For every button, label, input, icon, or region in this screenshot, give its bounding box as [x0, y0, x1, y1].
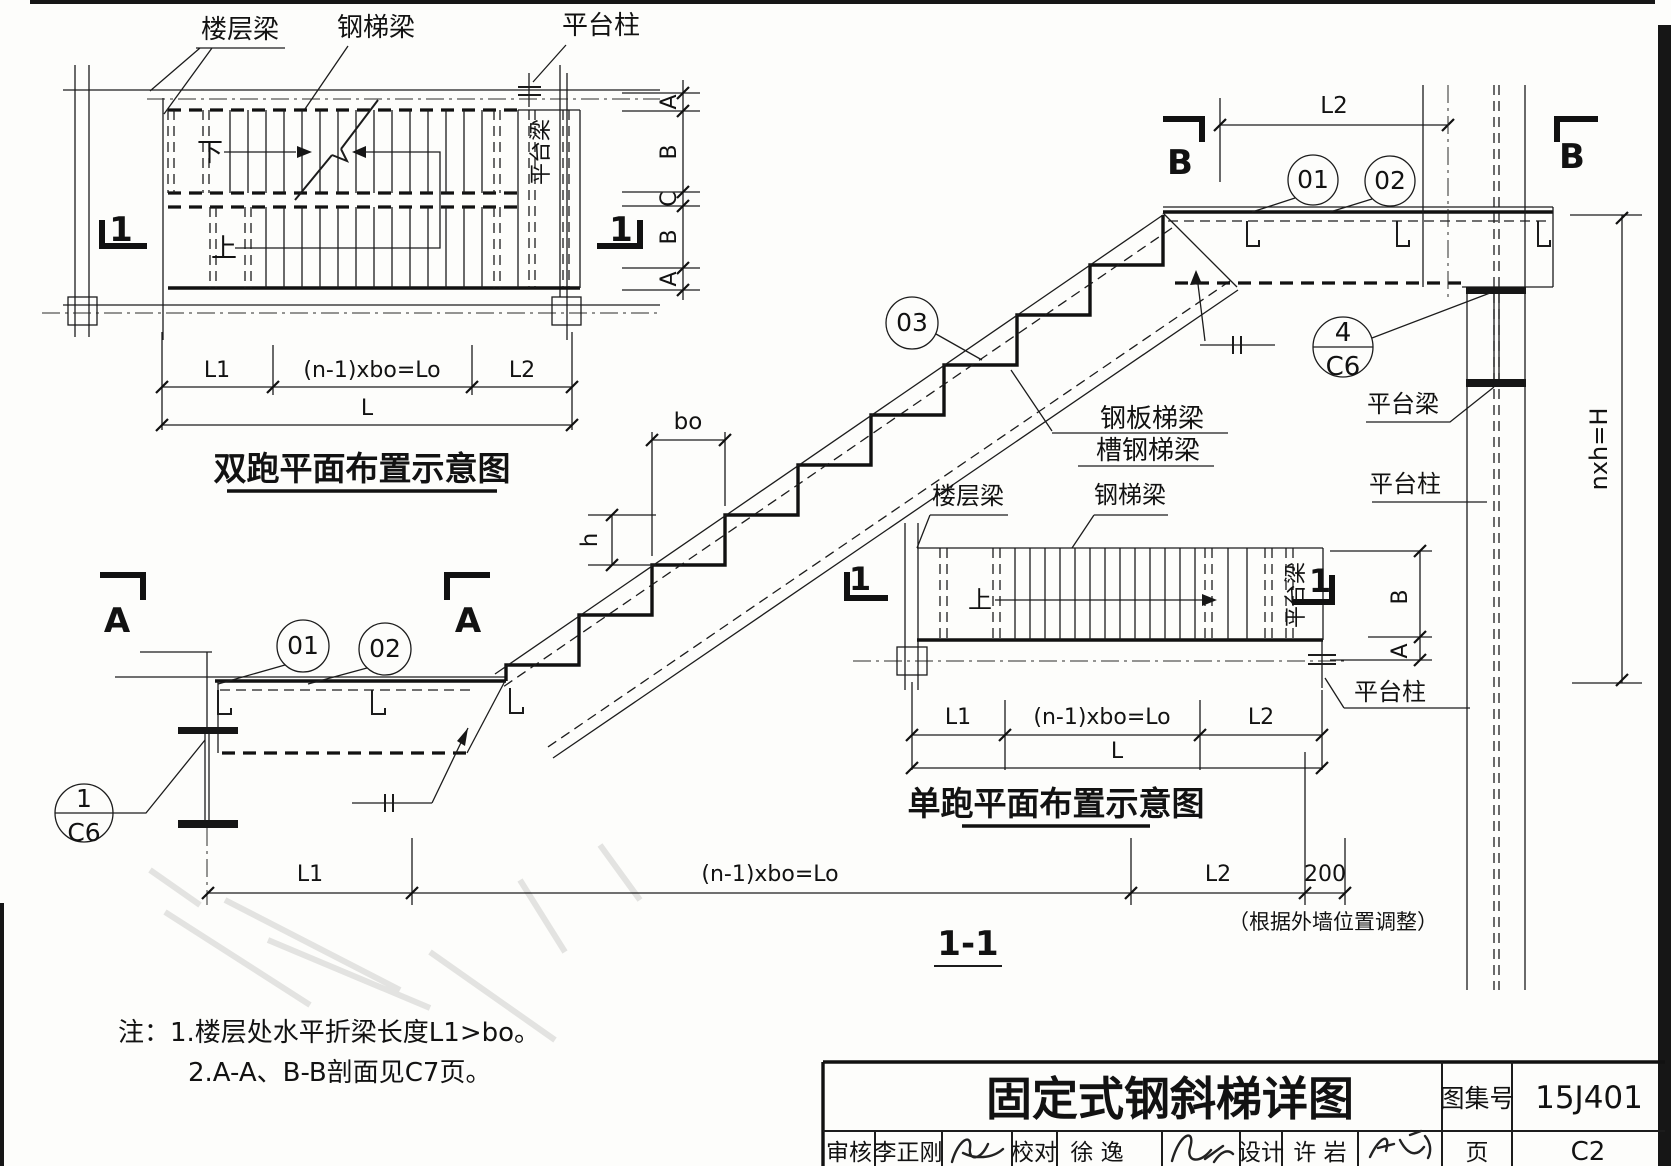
lower-platform: A A 01 02 1 C6	[55, 575, 523, 905]
note-line-1: 1.楼层处水平折梁长度L1>bo。	[170, 1018, 540, 1048]
designer-label: 设计	[1238, 1140, 1284, 1166]
up-label: 上	[968, 586, 992, 614]
dim-A: A	[657, 94, 682, 109]
detail-page: C6	[67, 818, 100, 847]
platform-column-label: 平台柱	[1354, 678, 1426, 706]
section-title: 1-1	[937, 924, 998, 964]
detail-number: 1	[76, 784, 92, 813]
section-mark-1: 1	[609, 210, 633, 250]
right-edge	[1658, 25, 1671, 1166]
atlas-number: 15J401	[1535, 1080, 1643, 1116]
dim-B: B	[657, 144, 682, 159]
checker-signature	[1172, 1136, 1233, 1162]
wall-adjust-note: （根据外墙位置调整）	[1228, 910, 1438, 934]
dim-A: A	[657, 271, 682, 286]
section-mark-bracket	[447, 575, 490, 600]
up-arrow-icon	[352, 146, 366, 158]
page-number: C2	[1571, 1137, 1606, 1166]
reviewer-name: 李正刚	[874, 1140, 943, 1166]
down-label: 下	[197, 138, 223, 168]
column-square	[68, 297, 97, 325]
plate-stair-beam-label: 钢板梯梁	[1100, 404, 1204, 434]
floor-beam-label: 楼层梁	[201, 15, 279, 45]
dim-200: 200	[1304, 862, 1346, 887]
dim-Lo: (n-1)xbo=Lo	[303, 358, 440, 383]
steel-stair-beam-label: 钢梯梁	[1094, 481, 1166, 509]
scan-artifacts	[150, 845, 640, 1040]
dim-Lo: (n-1)xbo=Lo	[701, 862, 838, 887]
beam-top-flange	[1466, 287, 1526, 294]
section-mark-bracket	[100, 575, 143, 600]
checker-name: 徐 逸	[1070, 1140, 1123, 1166]
plan-single-run: 楼层梁 钢梯梁 上 平台梁 1 1 B A 平台柱 L1 (n-1)xbo=Lo…	[847, 481, 1470, 826]
designer-name: 许 岩	[1293, 1140, 1346, 1166]
section-mark-B: B	[1559, 137, 1585, 177]
page-label: 页	[1466, 1140, 1489, 1166]
plan-single-title: 单跑平面布置示意图	[908, 784, 1205, 823]
dim-H: nxh=H	[1585, 408, 1613, 491]
platform-column-label: 平台柱	[1369, 470, 1441, 498]
notes: 注： 1.楼层处水平折梁长度L1>bo。 2.A-A、B-B剖面见C7页。	[118, 1018, 540, 1088]
platform-beam-label: 平台梁	[529, 119, 554, 185]
dim-B: B	[657, 229, 682, 244]
tread-lines	[1015, 548, 1247, 640]
channel-section-icon	[218, 688, 523, 714]
dim-L2: L2	[509, 358, 535, 383]
channel-section-icon	[1247, 221, 1550, 246]
reviewer-signature	[952, 1140, 1003, 1162]
title-block: 固定式钢斜梯详图 图集号 15J401 审核 李正刚 校对 徐 逸 设计 许 岩…	[823, 1062, 1665, 1166]
dim-L1: L1	[297, 862, 323, 887]
dim-C: C	[657, 191, 682, 206]
callout-01: 01	[287, 631, 319, 660]
dim-L: L	[361, 396, 374, 421]
dim-L1: L1	[204, 358, 230, 383]
dim-A: A	[1388, 643, 1413, 658]
section-bottom-dims: L1 (n-1)xbo=Lo L2 200 （根据外墙位置调整） 1-1	[202, 752, 1438, 966]
steel-stair-beam-label: 钢梯梁	[337, 13, 415, 43]
section-mark-1: 1	[1309, 562, 1331, 600]
up-label: 上	[211, 234, 237, 264]
platform-beam-label: 平台梁	[1284, 562, 1309, 628]
checker-label: 校对	[1011, 1140, 1057, 1166]
leader-arrow-icon	[457, 728, 468, 746]
reviewer-label: 审核	[826, 1140, 872, 1166]
top-edge	[30, 0, 1655, 4]
dim-L: L	[1111, 739, 1124, 764]
atlas-label: 图集号	[1439, 1084, 1514, 1113]
detail-number: 4	[1335, 318, 1352, 348]
dim-L2: L2	[1320, 93, 1347, 119]
plan-double-title: 双跑平面布置示意图	[214, 449, 511, 488]
plan-double-run: 楼层梁 钢梯梁 平台柱 下 上 平台梁 1 1 A B C B A L1 (n-…	[42, 11, 700, 491]
section-mark-1: 1	[849, 560, 871, 598]
left-edge	[0, 903, 4, 1166]
ibeam-top-flange	[178, 727, 238, 734]
callout-01: 01	[1297, 165, 1329, 194]
up-arrow-icon	[1202, 594, 1217, 606]
dim-L1: L1	[945, 705, 971, 730]
note-line-2: 2.A-A、B-B剖面见C7页。	[188, 1058, 491, 1088]
upper-platform: B B L2 01 02	[1163, 93, 1598, 354]
ibeam-bottom-flange	[178, 820, 238, 828]
floor-beam-label: 楼层梁	[932, 482, 1004, 510]
dim-bo: bo	[674, 409, 703, 435]
platform-beam-label: 平台梁	[1367, 390, 1439, 418]
dim-h: h	[577, 533, 603, 548]
section-1-1: A A 01 02 1 C6	[55, 85, 1642, 990]
notes-prefix: 注：	[118, 1018, 170, 1048]
callout-02: 02	[1374, 166, 1406, 195]
channel-stair-beam-label: 槽钢梯梁	[1096, 436, 1200, 466]
steps	[506, 215, 1163, 681]
dim-B: B	[1388, 589, 1413, 604]
section-mark-B: B	[1167, 143, 1193, 183]
platform-column-label: 平台柱	[562, 11, 640, 41]
section-mark-A: A	[104, 601, 131, 641]
dim-L2: L2	[1248, 705, 1274, 730]
sheet-title: 固定式钢斜梯详图	[986, 1072, 1354, 1126]
section-mark-1: 1	[109, 210, 133, 250]
leader-arrow-icon	[1190, 270, 1202, 285]
callout-03: 03	[896, 308, 928, 337]
section-mark-bracket	[1163, 119, 1202, 142]
beam-bottom-flange	[1466, 379, 1526, 387]
designer-signature	[1370, 1131, 1430, 1158]
detail-page: C6	[1326, 352, 1361, 382]
drawing-sheet: 楼层梁 钢梯梁 平台柱 下 上 平台梁 1 1 A B C B A L1 (n-…	[0, 0, 1671, 1166]
dim-Lo: (n-1)xbo=Lo	[1033, 705, 1170, 730]
stair-detail-drawing: 楼层梁 钢梯梁 平台柱 下 上 平台梁 1 1 A B C B A L1 (n-…	[0, 0, 1671, 1166]
down-arrow-icon	[297, 146, 312, 158]
callout-02: 02	[369, 634, 401, 663]
dim-L2: L2	[1205, 862, 1231, 887]
section-mark-A: A	[455, 601, 482, 641]
